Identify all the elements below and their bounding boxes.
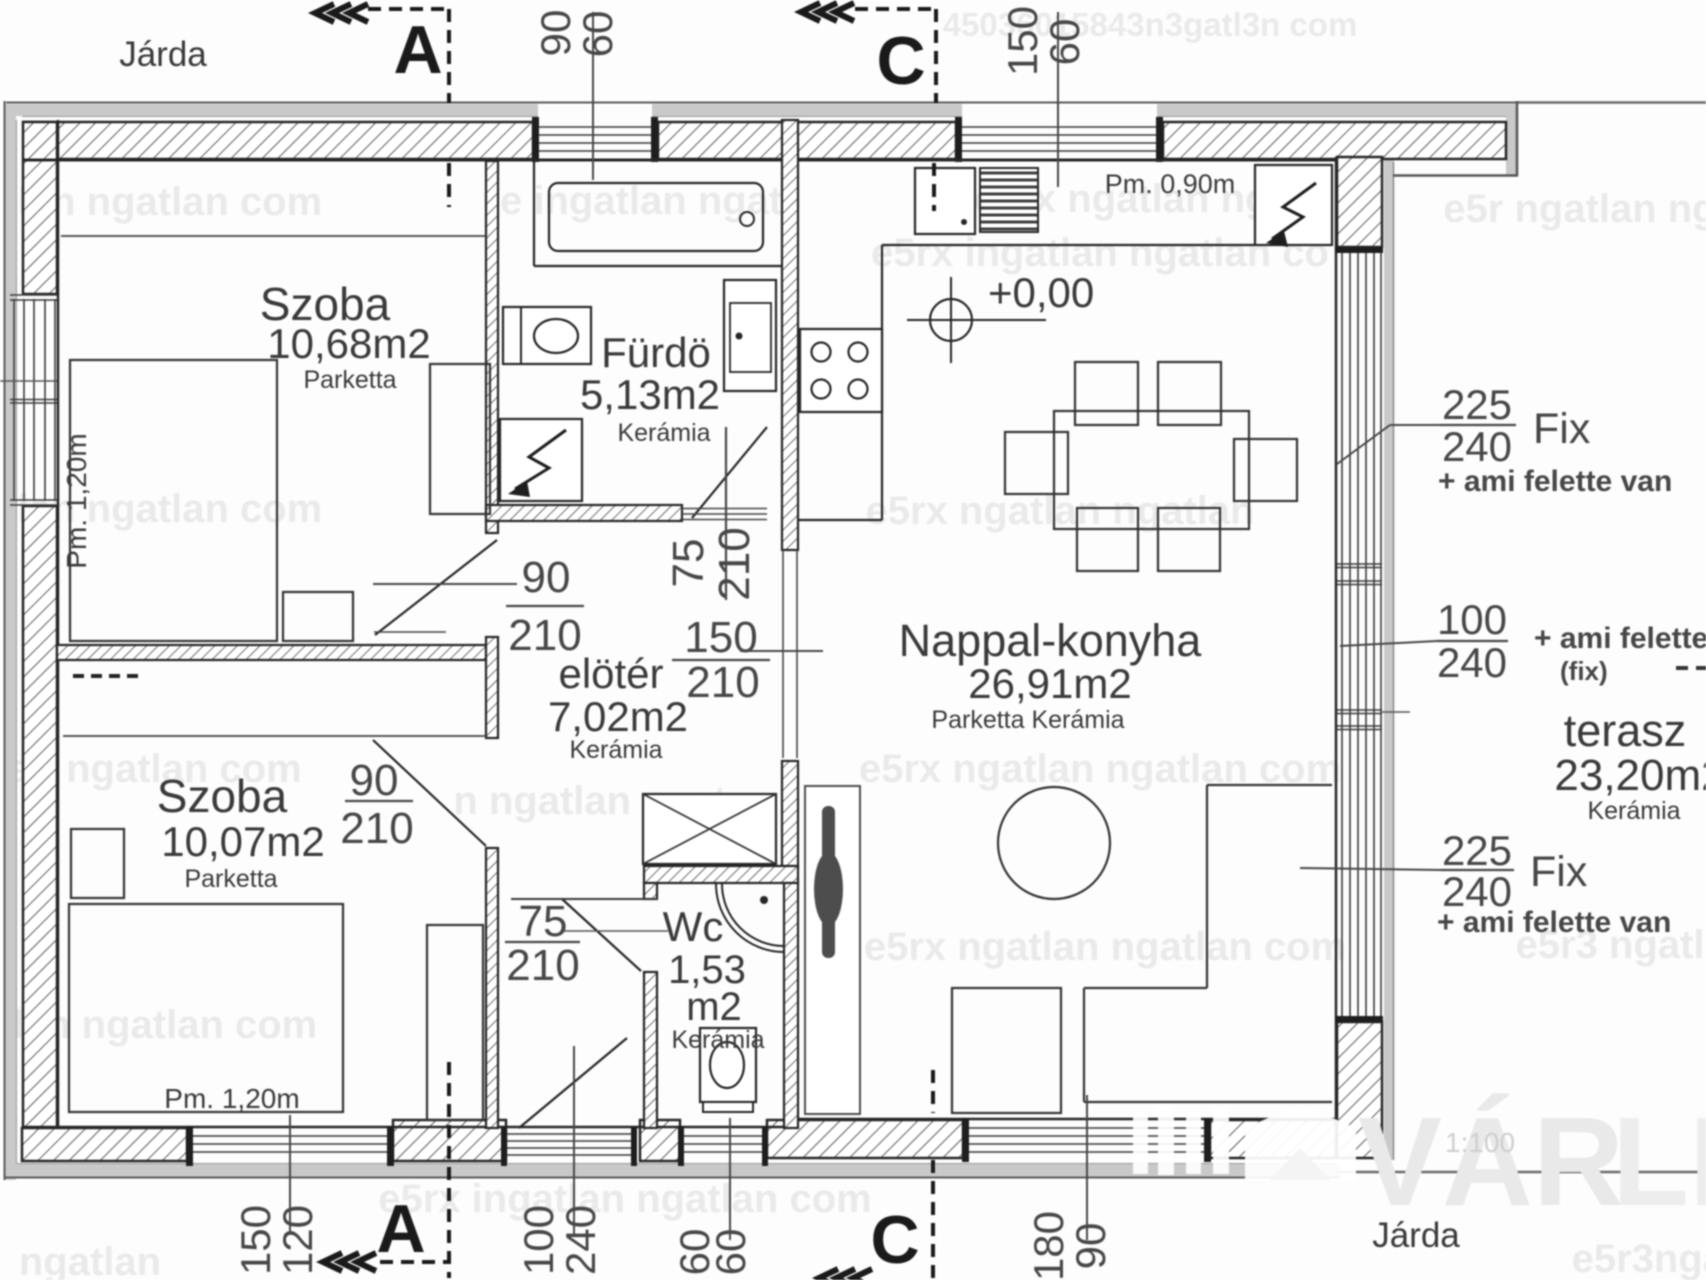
svg-text:Pm. 0,90m: Pm. 0,90m — [1105, 169, 1236, 199]
svg-text:90: 90 — [522, 553, 571, 602]
svg-text:75: 75 — [664, 539, 713, 588]
svg-text:10,07m2: 10,07m2 — [161, 818, 324, 865]
svg-text:150: 150 — [232, 1205, 279, 1275]
svg-text:LIA: LIA — [1612, 1091, 1706, 1232]
svg-text:210: 210 — [340, 804, 413, 853]
svg-text:Kerámia: Kerámia — [1587, 797, 1680, 825]
svg-text:240: 240 — [557, 1205, 604, 1275]
svg-text:75: 75 — [519, 897, 568, 946]
svg-text:Parketta: Parketta — [184, 865, 277, 893]
svg-text:90: 90 — [350, 756, 399, 805]
svg-text:+ ami felette van: + ami felette van — [1437, 906, 1671, 939]
svg-text:Pm. 1,20m: Pm. 1,20m — [164, 1083, 299, 1114]
svg-text:C: C — [876, 23, 925, 99]
svg-text:180: 180 — [1025, 1211, 1072, 1280]
svg-text:Parketta: Parketta — [303, 366, 396, 394]
svg-text:lan ngatlan com: lan ngatlan com — [18, 180, 323, 224]
svg-text:(fix): (fix) — [1560, 656, 1608, 686]
svg-text:240: 240 — [1437, 639, 1507, 686]
svg-text:+ ami felette van: + ami felette van — [1438, 465, 1672, 498]
svg-text:C: C — [870, 1202, 919, 1278]
svg-text:A: A — [376, 1191, 425, 1267]
svg-text:e5rx ingatlan ngatlan com: e5rx ingatlan ngatlan com — [378, 1177, 871, 1221]
svg-text:10,68m2: 10,68m2 — [267, 320, 430, 367]
svg-text:150: 150 — [684, 613, 757, 662]
svg-text:90: 90 — [532, 10, 579, 57]
svg-text:ngatlan: ngatlan — [19, 1240, 161, 1280]
svg-text:Fürdö: Fürdö — [601, 329, 711, 376]
svg-text:60: 60 — [1041, 19, 1088, 66]
svg-text:225: 225 — [1442, 827, 1512, 874]
svg-text:60: 60 — [574, 11, 621, 58]
svg-text:e5rx ngatlan ngatlan: e5rx ngatlan ngatlan — [866, 489, 1255, 533]
svg-text:VÁR: VÁR — [1358, 1091, 1624, 1232]
svg-text:26,91m2: 26,91m2 — [968, 660, 1131, 707]
svg-text:240: 240 — [1442, 423, 1512, 470]
svg-text:210: 210 — [506, 941, 579, 990]
svg-text:Parketta Kerámia: Parketta Kerámia — [931, 706, 1124, 734]
svg-text:210: 210 — [508, 611, 581, 660]
svg-text:m2: m2 — [686, 985, 742, 1029]
svg-text:1:100: 1:100 — [1445, 1127, 1515, 1158]
svg-text:150: 150 — [999, 6, 1046, 76]
svg-text:23,20m2: 23,20m2 — [1554, 751, 1706, 800]
svg-text:Wc: Wc — [663, 903, 724, 950]
svg-text:+ ami felette: + ami felette — [1534, 622, 1706, 655]
svg-text:90: 90 — [1067, 1223, 1114, 1270]
svg-text:5,13m2: 5,13m2 — [580, 371, 720, 418]
svg-text:Fix: Fix — [1530, 848, 1588, 896]
svg-text:100: 100 — [1437, 596, 1507, 643]
svg-text:Kerámia: Kerámia — [671, 1026, 764, 1054]
svg-text:Pm. 1,20m: Pm. 1,20m — [61, 433, 92, 568]
svg-text:Kerámia: Kerámia — [617, 419, 710, 447]
svg-text:7,02m2: 7,02m2 — [548, 693, 688, 740]
svg-text:terasz: terasz — [1564, 705, 1687, 756]
svg-text:225: 225 — [1442, 381, 1512, 428]
svg-text:100: 100 — [515, 1205, 562, 1275]
svg-text:Nappal-konyha: Nappal-konyha — [899, 615, 1203, 666]
svg-text:e5r3ngat: e5r3ngat — [1572, 1237, 1706, 1280]
svg-text:210: 210 — [710, 527, 759, 600]
svg-text:Fix: Fix — [1533, 405, 1591, 453]
svg-text:Szoba: Szoba — [157, 770, 288, 822]
svg-text:e5r ngatlan ng: e5r ngatlan ng — [1443, 187, 1706, 231]
svg-text:e5rx ngatlan ngatlan com: e5rx ngatlan ngatlan com — [864, 925, 1346, 969]
svg-text:120: 120 — [274, 1205, 321, 1275]
svg-text:210: 210 — [686, 658, 759, 707]
svg-text:Járda: Járda — [119, 35, 207, 74]
svg-text:Kerámia: Kerámia — [569, 736, 662, 764]
svg-text:A: A — [393, 12, 442, 88]
svg-text:+0,00: +0,00 — [988, 269, 1094, 316]
